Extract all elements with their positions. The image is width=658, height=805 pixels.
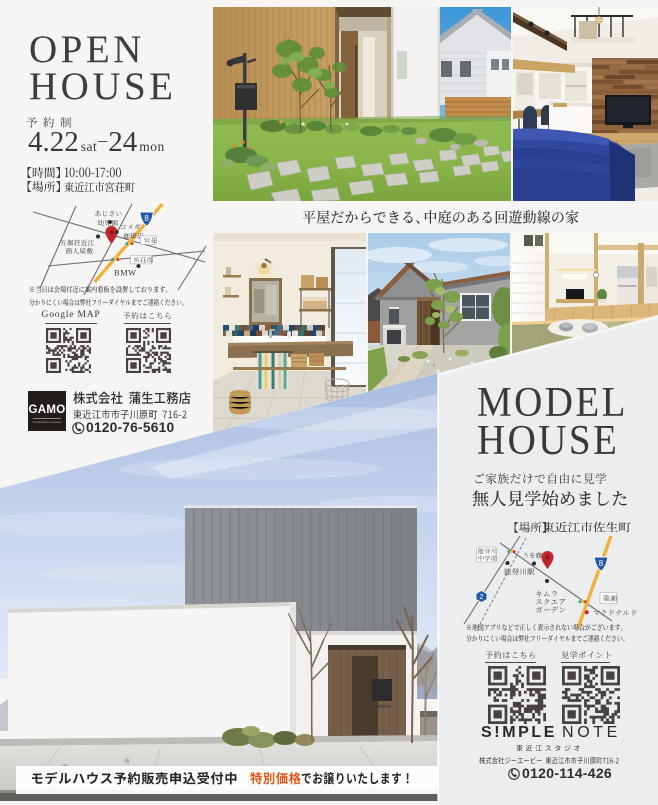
svg-text:2: 2 — [480, 594, 484, 601]
svg-text:BMW: BMW — [114, 268, 136, 278]
svg-text:8: 8 — [144, 214, 149, 223]
svg-text:8: 8 — [599, 559, 604, 568]
